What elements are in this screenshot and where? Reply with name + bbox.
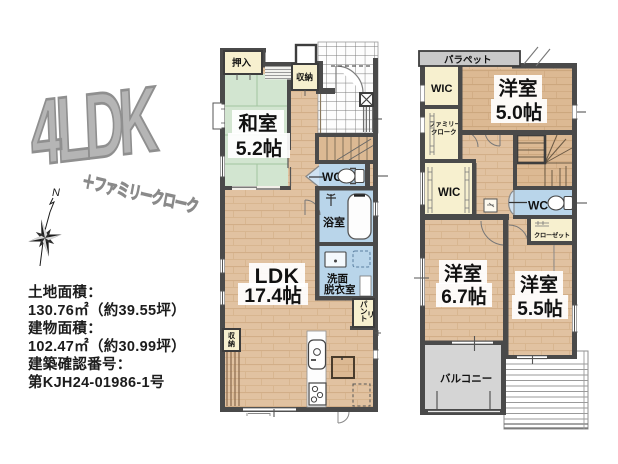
svg-text:建築確認番号：: 建築確認番号： xyxy=(28,355,132,373)
svg-text:クローク: クローク xyxy=(431,127,457,136)
svg-text:17.4帖: 17.4帖 xyxy=(244,284,302,307)
svg-text:6.7帖: 6.7帖 xyxy=(441,285,486,308)
svg-text:パラペット: パラペット xyxy=(444,54,492,66)
svg-text:洋室: 洋室 xyxy=(444,262,482,285)
svg-text:リ: リ xyxy=(367,310,375,319)
svg-text:5.5帖: 5.5帖 xyxy=(517,297,562,320)
svg-text:収: 収 xyxy=(228,331,236,340)
svg-text:クローゼット: クローゼット xyxy=(534,232,570,240)
svg-text:洋室: 洋室 xyxy=(520,273,558,296)
svg-text:102.47㎡（約30.99坪）: 102.47㎡（約30.99坪） xyxy=(28,337,186,355)
svg-text:押入: 押入 xyxy=(232,57,252,69)
svg-text:N: N xyxy=(52,187,60,199)
svg-text:4LDK: 4LDK xyxy=(29,67,160,185)
svg-text:納: 納 xyxy=(228,339,235,348)
svg-text:130.76㎡（約39.55坪）: 130.76㎡（約39.55坪） xyxy=(28,301,186,319)
svg-text:浴室: 浴室 xyxy=(323,215,345,229)
svg-text:第KJH24-01986-1号: 第KJH24-01986-1号 xyxy=(28,373,165,391)
svg-text:WC: WC xyxy=(528,199,548,213)
svg-text:WIC: WIC xyxy=(438,187,460,199)
svg-text:収納: 収納 xyxy=(296,72,313,82)
svg-text:和室: 和室 xyxy=(238,112,277,135)
svg-text:バルコニー: バルコニー xyxy=(440,373,492,385)
svg-text:土地面積：: 土地面積： xyxy=(28,283,102,301)
svg-text:5.0帖: 5.0帖 xyxy=(496,101,543,124)
svg-text:建物面積：: 建物面積： xyxy=(28,319,102,337)
svg-text:脱衣室: 脱衣室 xyxy=(324,283,356,296)
svg-text:洋室: 洋室 xyxy=(498,77,537,100)
svg-text:WIC: WIC xyxy=(431,83,452,95)
svg-text:5.2帖: 5.2帖 xyxy=(236,137,283,160)
